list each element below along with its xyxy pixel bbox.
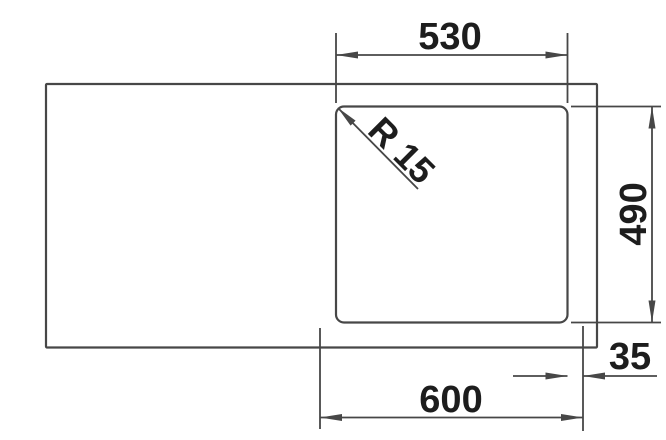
part-outlines [46,84,597,348]
dim-label-cutout-height: 490 [613,182,655,245]
arrow-530-left-icon [336,52,358,59]
arrow-530-right-icon [546,52,568,59]
drawing-canvas: 530 490 600 35 R 15 [0,0,666,440]
dim-label-cutout-width: 530 [418,16,481,58]
arrow-radius-icon [338,108,356,126]
dim-label-overall-width: 600 [419,379,482,421]
technical-drawing: 530 490 600 35 R 15 [0,0,666,440]
arrow-35-right-icon [583,373,605,380]
worktop-outline [46,84,597,348]
arrow-600-right-icon [561,414,583,421]
dim-label-right-offset: 35 [609,336,651,378]
arrow-35-left-icon [546,373,568,380]
dim-label-corner-radius: R 15 [360,109,443,192]
arrow-600-left-icon [320,414,342,421]
arrow-490-top-icon [649,107,656,129]
dimension-labels: 530 490 600 35 R 15 [360,16,655,421]
arrow-490-bottom-icon [649,301,656,323]
